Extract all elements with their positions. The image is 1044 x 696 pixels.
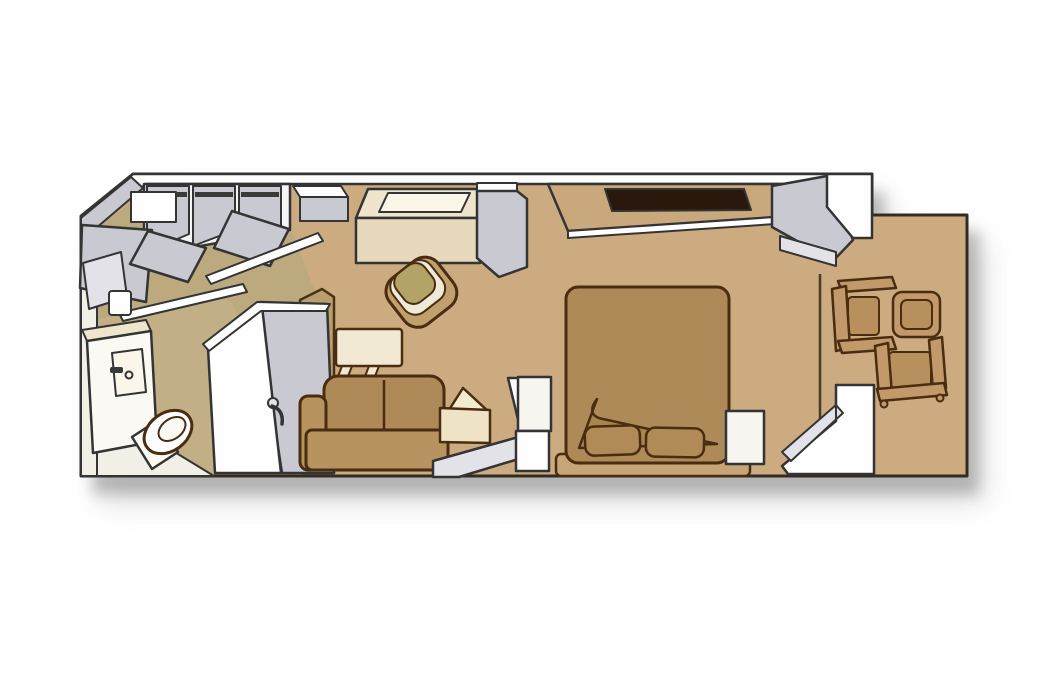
side-table [440, 408, 490, 443]
closet-rail-3 [241, 192, 279, 197]
nightstand-left-upper [518, 377, 551, 431]
floorplan-canvas [0, 0, 1044, 696]
vanity-door-handle [110, 367, 123, 373]
nightstand-right [726, 411, 764, 464]
pillow-right [646, 427, 704, 457]
desk-top-inset [379, 193, 470, 212]
balcony-chair-top-seat [848, 297, 879, 335]
bathroom-door-pull [109, 291, 131, 315]
balcony-table-inset [901, 300, 932, 329]
closet-end-panel [131, 192, 176, 222]
tv [336, 329, 402, 366]
window [605, 189, 751, 211]
stateroom-floorplan [0, 0, 1044, 696]
pillow-left [585, 425, 641, 456]
balcony-chair-foot-2 [937, 395, 944, 402]
sofa-seat [306, 430, 448, 470]
wall-stub [477, 191, 527, 277]
desk-front [356, 218, 480, 263]
balcony-chair-foot-1 [881, 401, 888, 408]
closet-rail-2 [195, 192, 233, 197]
balcony-chair-bottom-seat [889, 352, 931, 388]
balcony-table [893, 292, 940, 337]
nightstand-left-lower [516, 431, 549, 471]
safe [300, 197, 348, 221]
safe-top [293, 186, 348, 197]
